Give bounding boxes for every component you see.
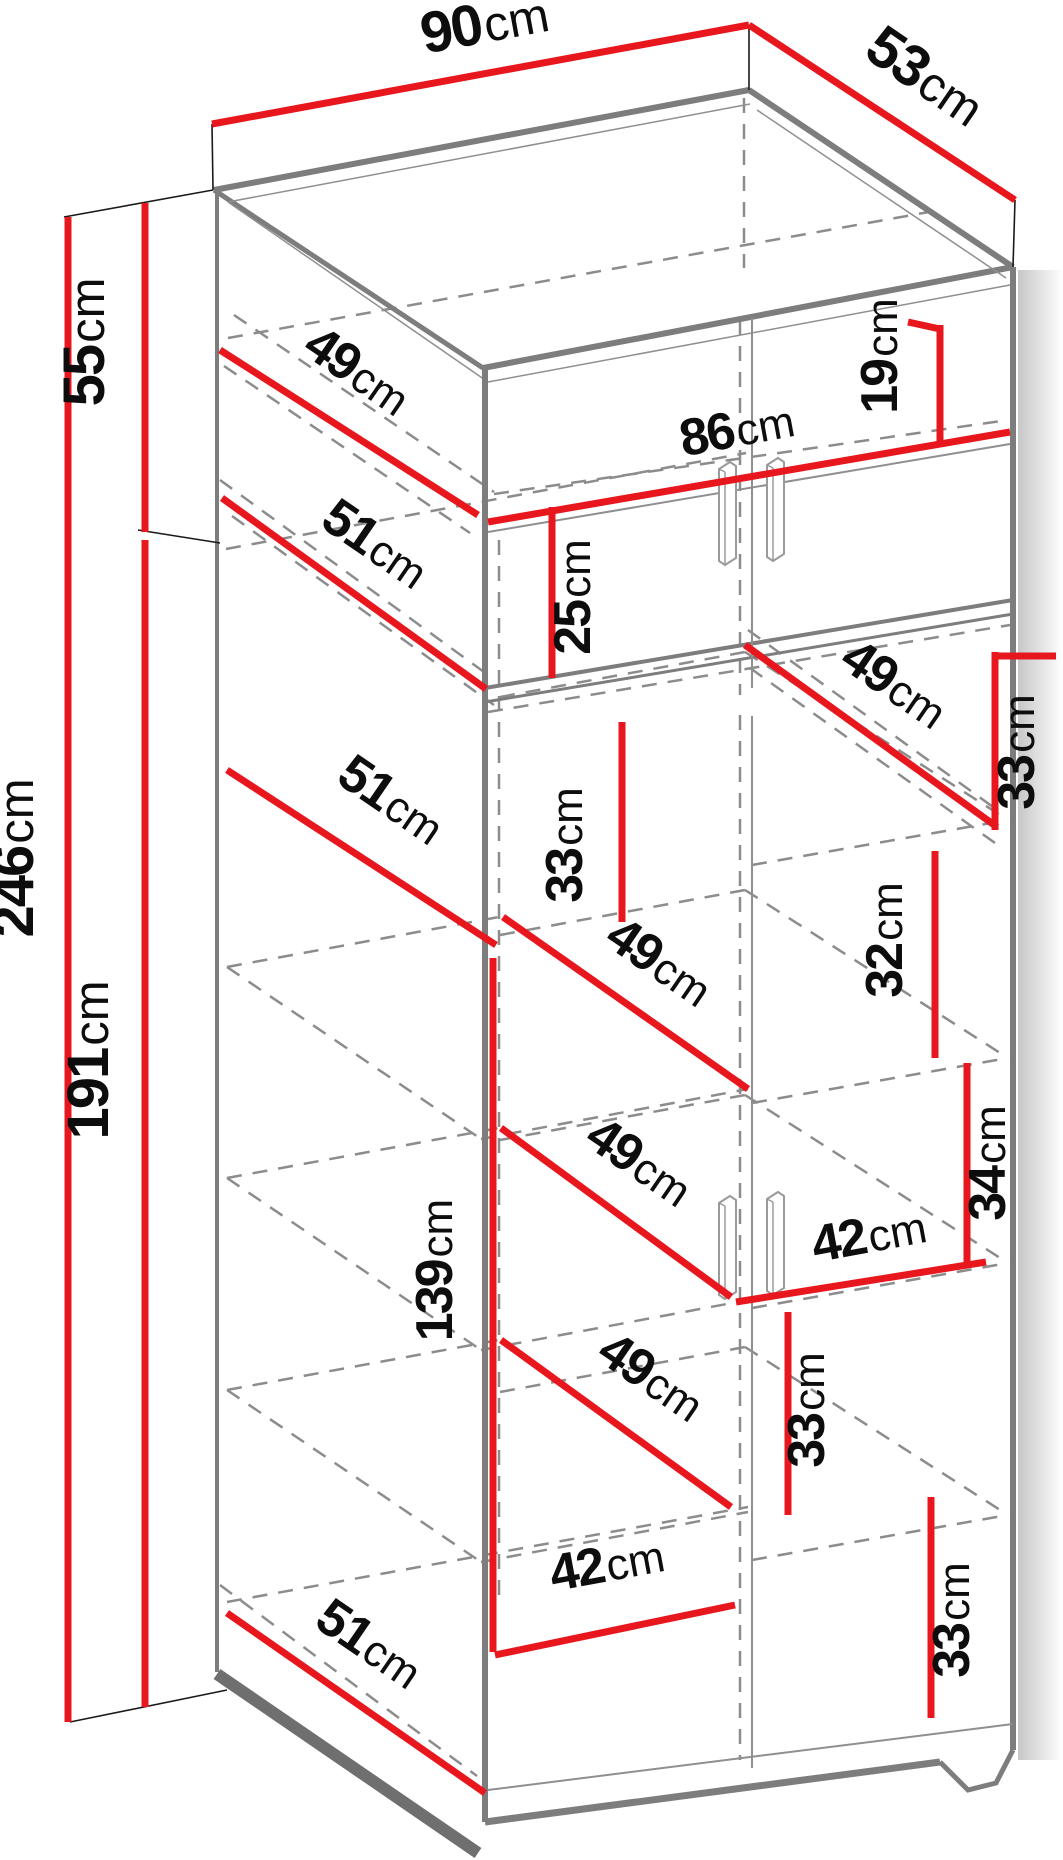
dim-label-upper-right-opening: 19cm — [851, 298, 909, 414]
diagram-canvas: 90cm 53cm 55cm 246cm 191cm 49cm 51cm 86c… — [0, 0, 1063, 1860]
door-handle — [767, 1192, 784, 1295]
dim-label-right-opening-3: 34cm — [959, 1105, 1017, 1221]
door-handle — [719, 1196, 736, 1299]
dim-label-center-opening: 33cm — [778, 1352, 836, 1468]
dim-label-lower-section-height: 191cm — [56, 980, 121, 1139]
dim-label-left-opening-1: 33cm — [536, 787, 594, 903]
dim-label-right-opening-4: 33cm — [923, 1562, 981, 1678]
dim-label-right-opening-2: 32cm — [856, 882, 914, 998]
dim-label-overall-height: 246cm — [0, 778, 46, 937]
wardrobe-dimension-diagram: 90cm 53cm 55cm 246cm 191cm 49cm 51cm 86c… — [0, 0, 1063, 1860]
dim-label-upper-left-opening: 25cm — [544, 539, 602, 655]
dim-label-upper-section-height: 55cm — [52, 278, 117, 407]
dim-label-left-interior-height: 139cm — [406, 1199, 464, 1341]
dim-label-right-opening-1: 33cm — [988, 694, 1046, 810]
extension-line — [212, 124, 213, 190]
right-edge-shadow — [1018, 270, 1063, 1760]
